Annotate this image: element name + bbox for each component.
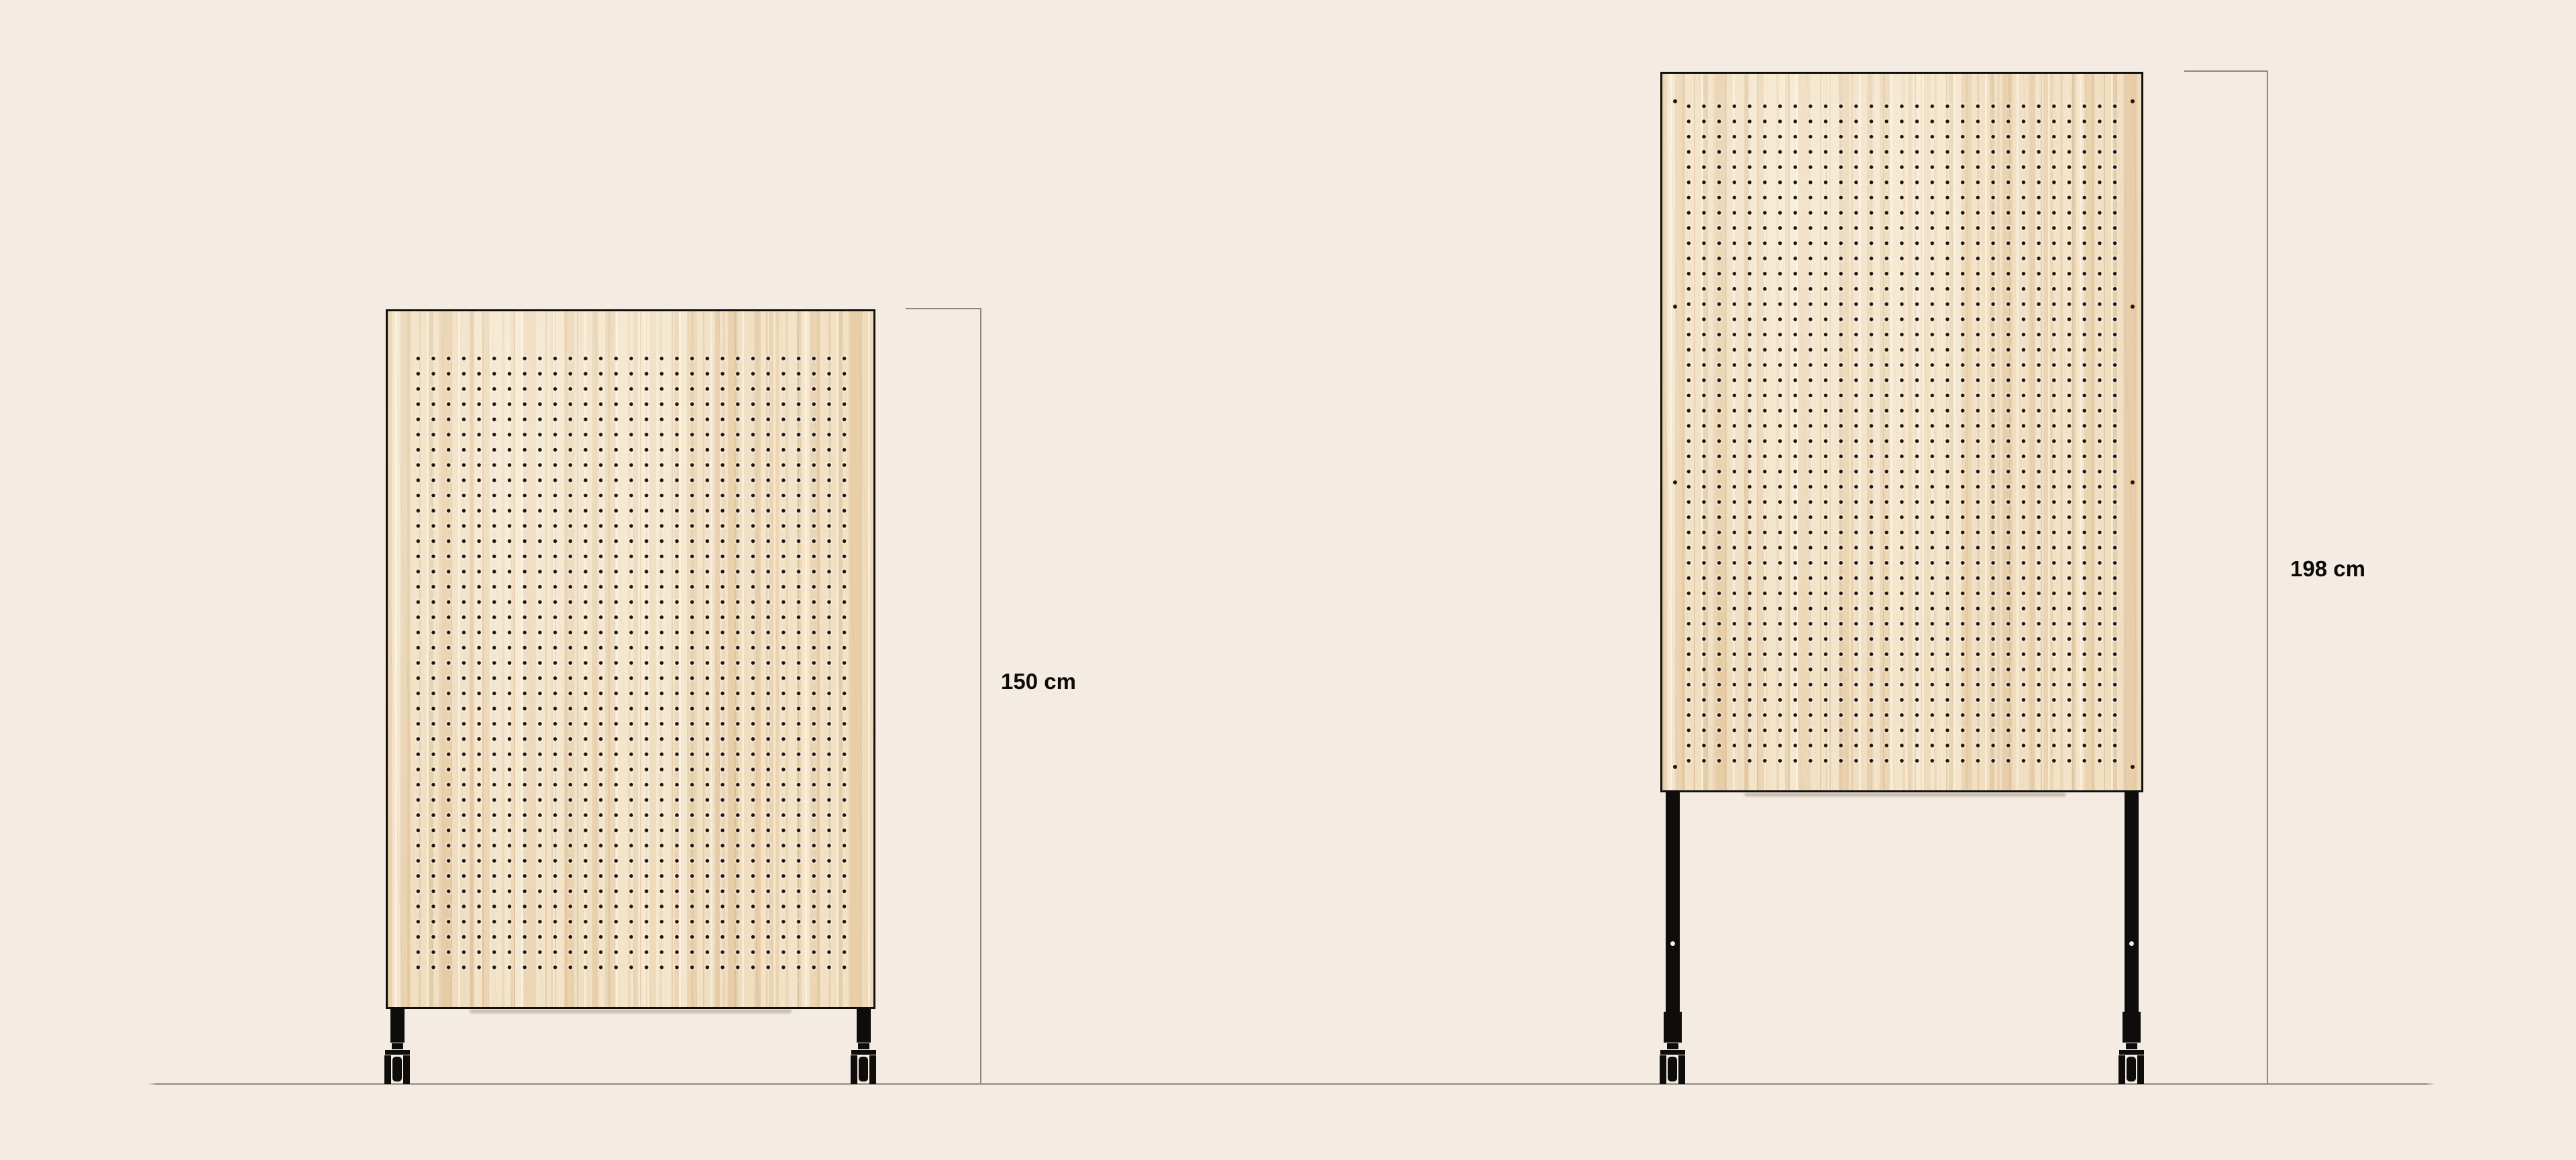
caster-collar <box>392 1043 403 1049</box>
caster-fork <box>1678 1055 1685 1084</box>
panel-shadow <box>1744 793 2066 796</box>
right-pegboard-panel <box>1660 72 2143 792</box>
caster-collar <box>858 1043 869 1049</box>
pegboard-holes <box>1681 99 2123 763</box>
caster-collar <box>1667 1043 1678 1049</box>
leg <box>390 1008 405 1043</box>
height-adjust-hole <box>2129 941 2134 946</box>
leg-outer-tube <box>2123 1012 2141 1043</box>
pegboard-holes <box>411 351 851 980</box>
screw-dot <box>2131 765 2135 769</box>
leg-upper-tube <box>1666 790 1680 1012</box>
caster-wheel <box>2127 1057 2136 1082</box>
caster-fork <box>851 1055 857 1084</box>
caster-fork <box>2137 1055 2144 1084</box>
caster-fork <box>1660 1055 1666 1084</box>
panel-shadow <box>470 1010 792 1013</box>
caster-mount <box>1660 1050 1685 1055</box>
drawing-canvas: 150 cm <box>0 0 2576 1160</box>
caster-fork <box>384 1055 391 1084</box>
left-dimension-label: 150 cm <box>1001 668 1076 695</box>
leg-outer-tube <box>1664 1012 1682 1043</box>
screw-dot <box>2131 480 2135 484</box>
caster-mount <box>385 1050 410 1055</box>
caster-fork <box>403 1055 410 1084</box>
left-pegboard-panel <box>386 309 875 1009</box>
caster-mount <box>851 1050 876 1055</box>
caster-mount <box>2119 1050 2144 1055</box>
right-dimension-line <box>2267 70 2268 1084</box>
leg-upper-tube <box>2125 790 2139 1012</box>
caster-fork <box>869 1055 876 1084</box>
left-dimension-top-tick <box>906 308 981 309</box>
leg <box>857 1008 871 1043</box>
ground-line <box>148 1083 2435 1085</box>
caster-fork <box>2118 1055 2125 1084</box>
caster-wheel <box>392 1057 402 1082</box>
caster-wheel <box>1668 1057 1677 1082</box>
screw-dot <box>2131 305 2135 309</box>
caster-wheel <box>859 1057 868 1082</box>
left-dimension-line <box>980 308 981 1084</box>
height-adjust-hole <box>1670 941 1675 946</box>
caster-collar <box>2126 1043 2137 1049</box>
screw-dot <box>1673 480 1677 484</box>
screw-dot <box>1673 99 1677 103</box>
screw-dot <box>2131 99 2135 103</box>
screw-dot <box>1673 765 1677 769</box>
right-dimension-top-tick <box>2184 70 2268 72</box>
screw-dot <box>1673 305 1677 309</box>
right-dimension-label: 198 cm <box>2290 556 2365 582</box>
